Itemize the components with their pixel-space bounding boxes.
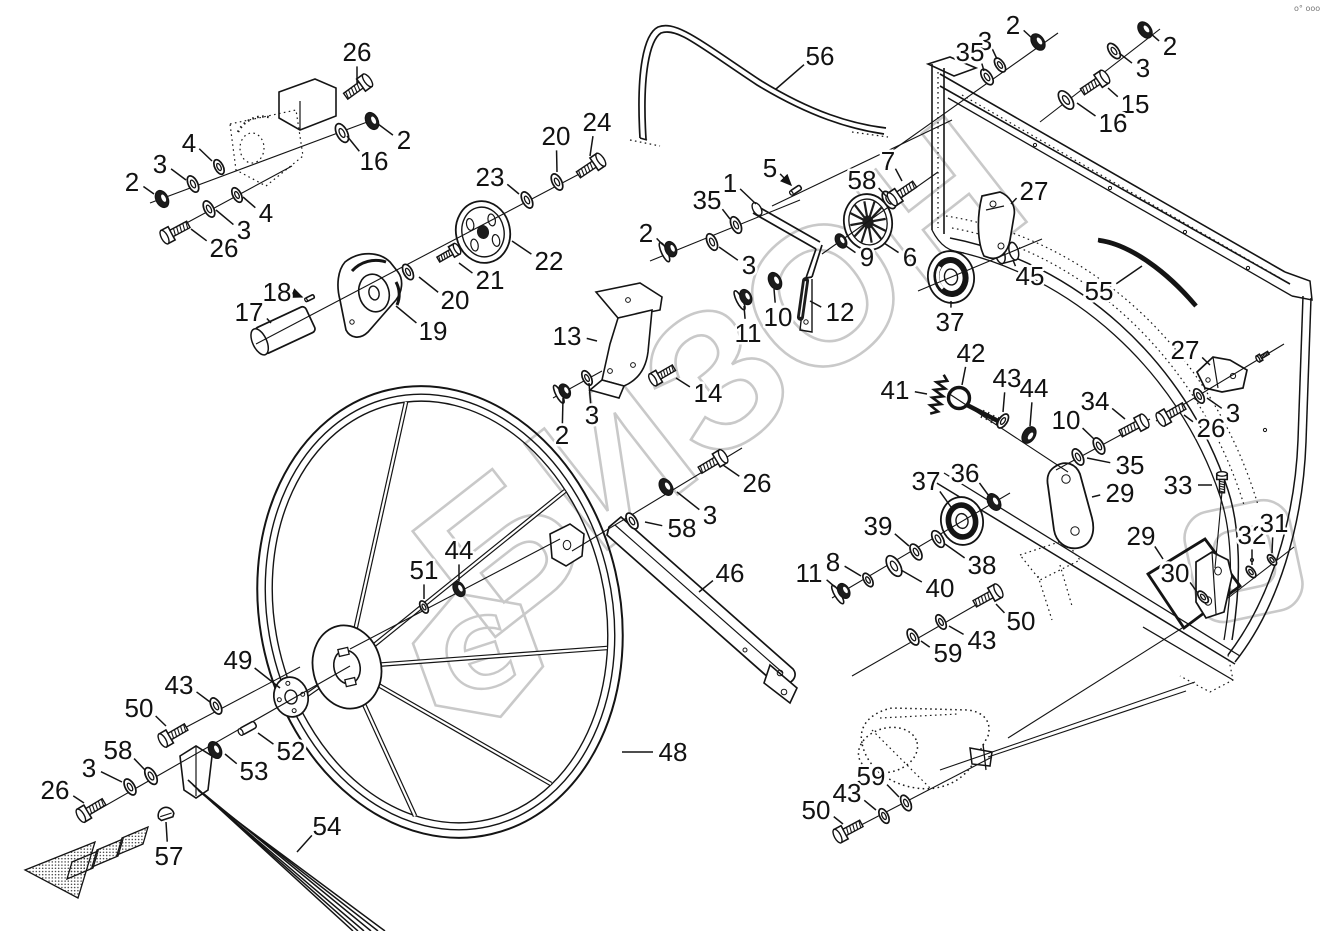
callout-number: 3 xyxy=(237,215,251,245)
callout-number: 13 xyxy=(553,321,582,351)
callout: 35 xyxy=(1087,450,1144,480)
diagram-canvas: БИЗОН Є xyxy=(0,0,1333,931)
part-b xyxy=(1154,400,1188,428)
callout-number: 3 xyxy=(1226,398,1240,428)
callout-leader xyxy=(827,580,835,587)
callout-leader xyxy=(1207,398,1222,408)
callout-number: 26 xyxy=(41,775,70,805)
part-p xyxy=(237,721,257,736)
part-f xyxy=(657,237,680,263)
callout: 26 xyxy=(41,775,84,805)
callout-number: 26 xyxy=(1197,413,1226,443)
part-w xyxy=(1244,565,1258,580)
part-n xyxy=(153,188,172,209)
callout-number: 3 xyxy=(153,149,167,179)
callout-number: 27 xyxy=(1171,335,1200,365)
callout-number: 16 xyxy=(360,146,389,176)
callout: 2 xyxy=(1150,31,1177,61)
callout-number: 34 xyxy=(1081,386,1110,416)
callout: 49 xyxy=(224,645,280,688)
callout-leader xyxy=(699,581,713,592)
callout: 29 xyxy=(1092,478,1134,508)
callout-number: 7 xyxy=(881,146,895,176)
callout: 18 xyxy=(263,277,302,307)
callout: 56 xyxy=(776,41,834,89)
callout-number: 44 xyxy=(1020,373,1049,403)
callout-number: 49 xyxy=(224,645,253,675)
pulley-22 xyxy=(450,196,516,268)
callout-number: 42 xyxy=(957,338,986,368)
part-b xyxy=(435,242,462,264)
callout: 50 xyxy=(996,604,1035,636)
callout-leader xyxy=(1083,428,1094,439)
callout: 43 xyxy=(993,363,1022,412)
callout-number: 39 xyxy=(864,511,893,541)
callout-number: 58 xyxy=(848,165,877,195)
callout-number: 50 xyxy=(125,693,154,723)
callout-number: 38 xyxy=(968,550,997,580)
callout-number: 29 xyxy=(1106,478,1135,508)
axis-line xyxy=(940,682,1195,770)
callout-number: 26 xyxy=(210,233,239,263)
part-w xyxy=(978,67,995,87)
callout-number: 35 xyxy=(693,185,722,215)
callout-leader xyxy=(347,136,359,151)
part-w xyxy=(877,807,892,825)
part-w xyxy=(212,158,227,176)
callout-leader xyxy=(73,796,84,803)
callout: 40 xyxy=(901,570,954,603)
callout-number: 31 xyxy=(1260,508,1289,538)
callout: 33 xyxy=(1164,470,1212,500)
callout-number: 26 xyxy=(343,37,372,67)
callout-number: 8 xyxy=(826,547,840,577)
callout-leader xyxy=(895,534,909,546)
callout-leader xyxy=(255,668,280,688)
part-w xyxy=(898,794,913,813)
callout-leader xyxy=(1116,266,1142,284)
callout-number: 43 xyxy=(165,670,194,700)
callout-number: 26 xyxy=(743,468,772,498)
callout-number: 10 xyxy=(1052,405,1081,435)
callout-number: 12 xyxy=(826,297,855,327)
callout-leader xyxy=(166,822,167,842)
callout: 57 xyxy=(155,822,184,871)
part-b xyxy=(1078,69,1111,98)
callout-leader xyxy=(780,174,791,185)
callout-number: 2 xyxy=(639,218,653,248)
guard-tube xyxy=(630,26,888,146)
callout-number: 56 xyxy=(806,41,835,71)
part-f xyxy=(830,579,854,605)
callout-number: 37 xyxy=(912,466,941,496)
callout-leader xyxy=(1024,30,1033,39)
callout-leader xyxy=(1077,103,1096,116)
callout-leader xyxy=(378,124,393,135)
callout: 26 xyxy=(191,229,238,263)
eyebolt-42 xyxy=(949,388,1000,426)
axis-line xyxy=(988,691,1186,757)
callout: 50 xyxy=(125,693,166,726)
part-w xyxy=(201,199,217,219)
callout: 45 xyxy=(1013,260,1044,291)
callout-leader xyxy=(901,570,922,582)
callout-number: 57 xyxy=(155,841,184,871)
callout-number: 11 xyxy=(735,318,762,348)
part-w xyxy=(230,186,245,204)
callout-leader xyxy=(297,835,312,852)
callout-number: 48 xyxy=(659,737,688,767)
callout-leader xyxy=(915,392,927,394)
callout-leader xyxy=(845,566,861,576)
callout-number: 43 xyxy=(993,363,1022,393)
callout-number: 54 xyxy=(313,811,342,841)
part-b xyxy=(971,583,1005,611)
callout-leader xyxy=(419,277,438,292)
corner-mark: o° ooo xyxy=(1294,4,1320,13)
callout-number: 9 xyxy=(860,242,874,272)
callout: 5 xyxy=(763,153,791,185)
callout-leader xyxy=(199,149,212,161)
callout-number: 22 xyxy=(535,246,564,276)
callout-leader xyxy=(921,641,930,647)
callout: 39 xyxy=(864,511,909,546)
callout-number: 29 xyxy=(1127,521,1156,551)
callout-number: 14 xyxy=(694,378,723,408)
callout-number: 18 xyxy=(263,277,292,307)
callout-leader xyxy=(1092,495,1100,497)
callout-number: 43 xyxy=(833,778,862,808)
callout-leader xyxy=(101,772,122,782)
part-b xyxy=(831,817,865,844)
part-b xyxy=(341,72,374,102)
callout-leader xyxy=(590,136,593,156)
callout-number: 4 xyxy=(259,198,273,228)
callout-leader xyxy=(1119,53,1132,63)
callout: 23 xyxy=(476,162,519,194)
part-w xyxy=(1105,41,1123,61)
callout-leader xyxy=(1108,88,1118,97)
callout-number: 33 xyxy=(1164,470,1193,500)
callout-leader xyxy=(1112,408,1125,419)
callout-number: 5 xyxy=(763,153,777,183)
callout-leader xyxy=(776,65,804,89)
callout-leader xyxy=(225,754,237,764)
callout-leader xyxy=(258,733,273,744)
callout-number: 6 xyxy=(903,242,917,272)
callout-leader xyxy=(887,785,899,797)
part-n xyxy=(1135,19,1155,41)
callout: 37 xyxy=(912,466,951,507)
callout-number: 44 xyxy=(445,535,474,565)
callout-number: 3 xyxy=(82,753,96,783)
wear-strip-54 xyxy=(188,780,385,931)
callout-number: 2 xyxy=(1163,31,1177,61)
callout-number: 36 xyxy=(951,458,980,488)
callout: 43 xyxy=(165,670,210,702)
callout-number: 51 xyxy=(410,555,439,585)
callout: 53 xyxy=(225,754,268,786)
callout-number: 40 xyxy=(926,573,955,603)
callout: 36 xyxy=(951,458,989,496)
part-w xyxy=(122,777,139,797)
callout: 59 xyxy=(857,761,899,797)
callout-leader xyxy=(171,169,186,180)
part-w xyxy=(1191,387,1206,405)
callout: 16 xyxy=(347,136,388,176)
callout-number: 27 xyxy=(1020,176,1049,206)
callout-leader xyxy=(1087,458,1110,463)
callout-leader xyxy=(396,306,416,323)
callout: 26 xyxy=(1184,413,1225,443)
callout: 35 xyxy=(956,37,985,71)
callout-number: 2 xyxy=(1006,10,1020,40)
callout-leader xyxy=(740,189,756,204)
part-w xyxy=(995,412,1011,430)
part-n xyxy=(1019,424,1039,446)
support-arm-46 xyxy=(607,517,797,703)
callout-number: 37 xyxy=(936,307,965,337)
callout-number: 11 xyxy=(796,558,823,588)
callout-number: 20 xyxy=(441,285,470,315)
callout-number: 43 xyxy=(968,625,997,655)
callout-number: 2 xyxy=(125,167,139,197)
callout-number: 1 xyxy=(723,168,737,198)
part-w xyxy=(333,122,352,145)
callout: 55 xyxy=(1085,266,1142,306)
link-29a xyxy=(1047,463,1093,548)
callout-number: 24 xyxy=(583,107,612,137)
callout-leader xyxy=(216,210,233,225)
callout-number: 55 xyxy=(1085,276,1114,306)
callout-leader xyxy=(507,184,519,194)
callout: 24 xyxy=(583,107,612,156)
callout-leader xyxy=(134,759,145,770)
callout-leader xyxy=(1003,392,1005,412)
callout-leader xyxy=(1272,537,1273,553)
callout: 2 xyxy=(125,167,154,197)
part-b xyxy=(158,218,192,245)
part-plug xyxy=(156,805,175,821)
callout-number: 3 xyxy=(585,400,599,430)
callout: 3 xyxy=(1119,53,1150,83)
part-b xyxy=(1255,350,1270,363)
callout: 4 xyxy=(182,128,212,161)
callout-number: 53 xyxy=(240,756,269,786)
callout-number: 10 xyxy=(764,302,793,332)
callout-number: 21 xyxy=(476,265,505,295)
callout-number: 16 xyxy=(1099,108,1128,138)
callout: 22 xyxy=(512,241,563,276)
callout-number: 23 xyxy=(476,162,505,192)
callout: 16 xyxy=(1077,103,1127,138)
callout-number: 2 xyxy=(555,420,569,450)
callout: 59 xyxy=(921,638,962,668)
callout-number: 3 xyxy=(742,250,756,280)
callout-leader xyxy=(992,49,997,59)
direction-arrow xyxy=(25,827,148,898)
callout-number: 2 xyxy=(397,125,411,155)
bracket-27b xyxy=(1197,357,1247,392)
callout-number: 3 xyxy=(1136,53,1150,83)
callout: 20 xyxy=(542,121,571,172)
callout: 41 xyxy=(881,375,927,405)
callout: 44 xyxy=(1020,373,1049,426)
callout: 34 xyxy=(1081,386,1125,419)
axis-line xyxy=(1008,618,1198,738)
part-w xyxy=(208,696,224,716)
part-b xyxy=(574,152,607,181)
callout-number: 35 xyxy=(956,37,985,67)
callout: 54 xyxy=(297,811,341,852)
part-p xyxy=(304,294,315,302)
callout: 29 xyxy=(1127,521,1163,559)
callout-number: 45 xyxy=(1016,261,1045,291)
part-w xyxy=(400,263,416,282)
callout: 51 xyxy=(410,555,439,599)
callout-leader xyxy=(512,241,531,254)
callout-leader xyxy=(744,306,745,319)
callout: 20 xyxy=(419,277,469,315)
callout-leader xyxy=(834,817,843,824)
part-w xyxy=(519,190,535,210)
callout: 37 xyxy=(936,301,965,337)
callout-number: 20 xyxy=(542,121,571,151)
callout: 48 xyxy=(622,737,687,767)
callout-number: 19 xyxy=(419,316,448,346)
callout-leader xyxy=(459,263,472,273)
callout-leader xyxy=(197,692,210,702)
callout: 27 xyxy=(1171,335,1210,365)
callout-number: 4 xyxy=(182,128,196,158)
callout-number: 41 xyxy=(881,375,910,405)
part-n xyxy=(1028,31,1048,53)
callout-leader xyxy=(722,209,730,219)
callout-number: 59 xyxy=(934,638,963,668)
callout-number: 58 xyxy=(668,513,697,543)
wheel-hub xyxy=(304,618,389,715)
callout-number: 50 xyxy=(802,795,831,825)
callout-number: 50 xyxy=(1007,606,1036,636)
part-w xyxy=(992,56,1008,74)
callout-leader xyxy=(949,626,964,634)
hub-flange-49 xyxy=(270,674,312,721)
part-b xyxy=(156,721,190,749)
callout-leader xyxy=(1030,402,1032,426)
callout-leader xyxy=(864,800,876,810)
callout: 8 xyxy=(826,547,861,577)
part-n xyxy=(363,110,382,131)
callout-leader xyxy=(945,544,965,558)
callout-leader xyxy=(156,716,166,726)
callout-leader xyxy=(191,229,207,241)
callout-leader xyxy=(297,295,302,297)
callout: 2 xyxy=(1006,10,1033,40)
callout-number: 30 xyxy=(1161,558,1190,588)
callout-number: 52 xyxy=(277,736,306,766)
callout-number: 17 xyxy=(235,297,264,327)
callout: 42 xyxy=(957,338,986,385)
callout-number: 58 xyxy=(104,735,133,765)
callout-leader xyxy=(143,186,154,194)
callout: 46 xyxy=(699,558,744,592)
callout-number: 46 xyxy=(716,558,745,588)
callout-leader xyxy=(996,604,1004,613)
callout-number: 35 xyxy=(1116,450,1145,480)
part-w xyxy=(185,174,201,194)
callout: 1 xyxy=(723,168,756,204)
callout-leader xyxy=(979,483,989,496)
part-coil xyxy=(928,373,948,415)
callout-leader xyxy=(962,367,966,385)
bracket-block-topleft xyxy=(230,79,336,186)
callout-leader xyxy=(243,197,255,208)
callout: 58 xyxy=(104,735,145,770)
part-w xyxy=(1266,553,1279,567)
callout-number: 3 xyxy=(703,500,717,530)
